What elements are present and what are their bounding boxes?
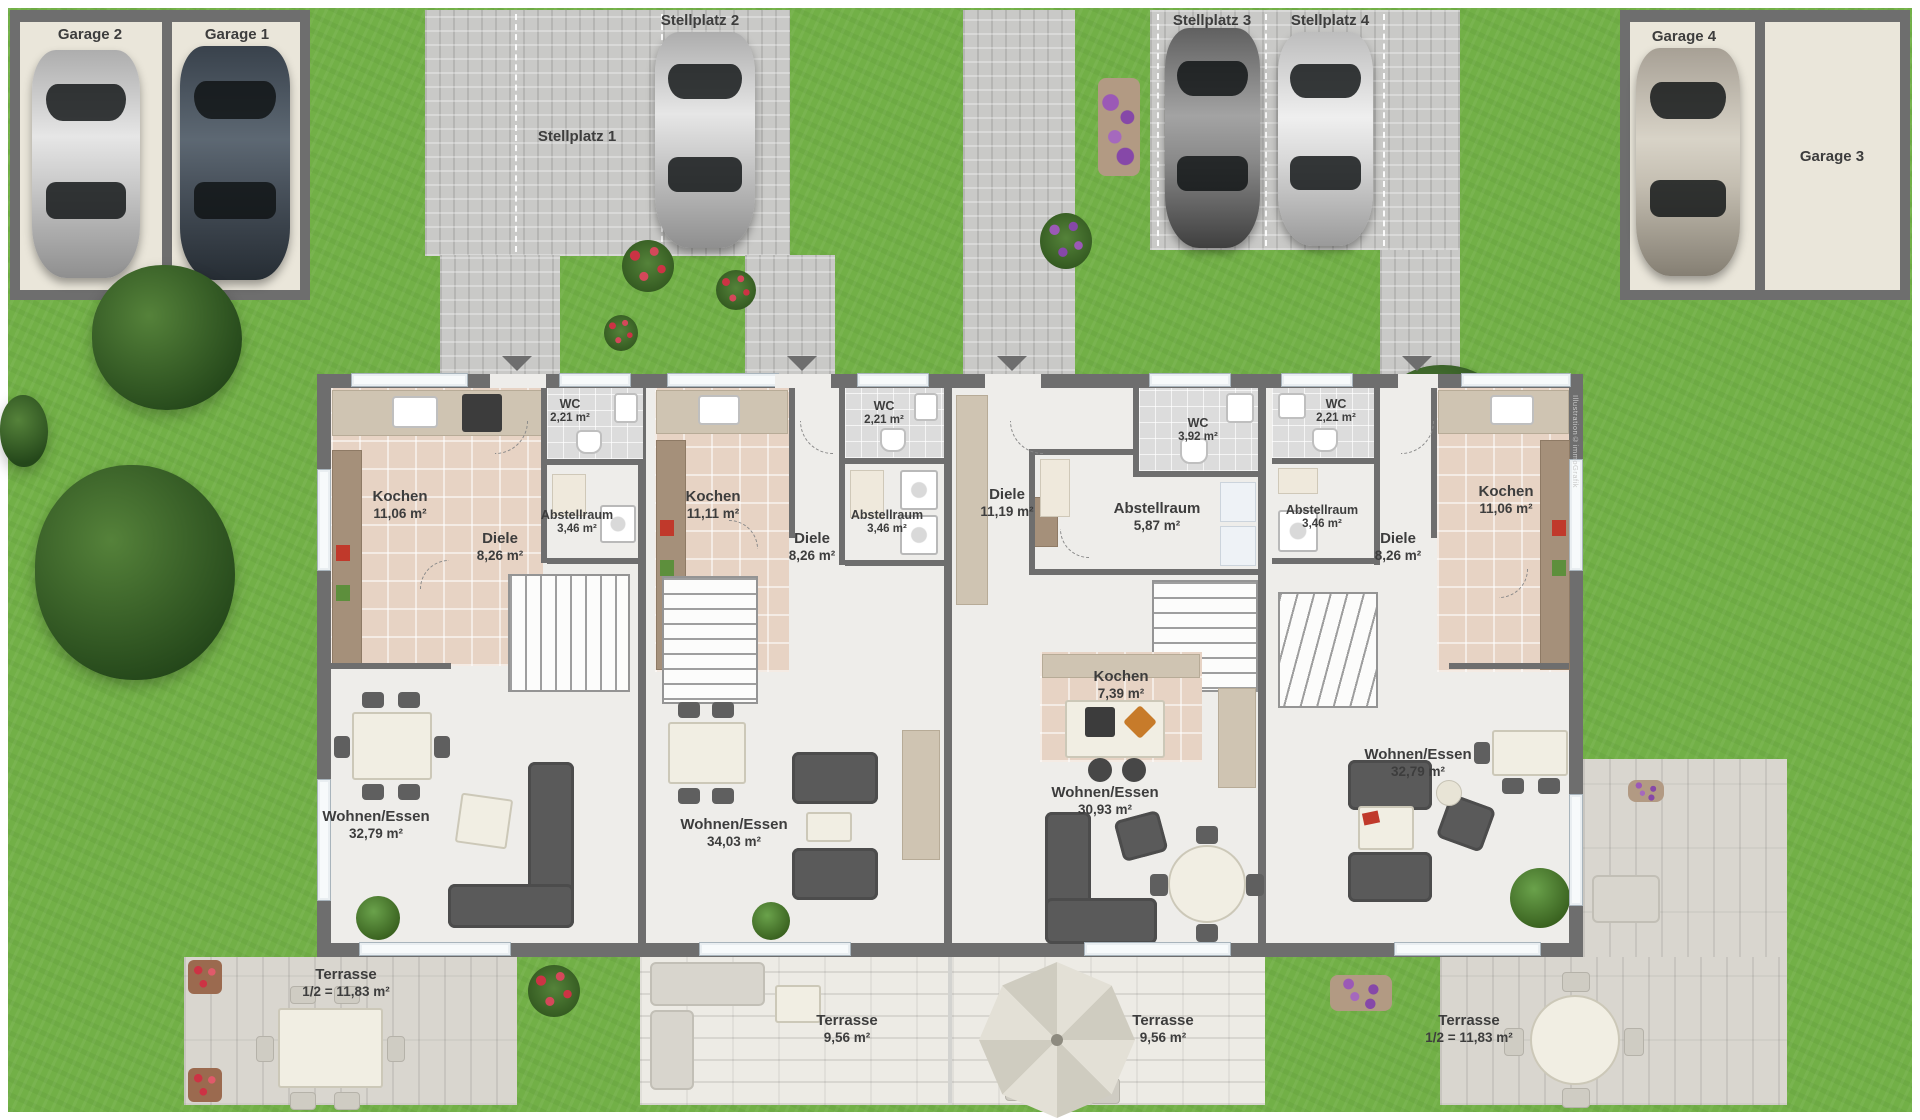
stellplatz-1-label: Stellplatz 1 [538,128,616,145]
flower-bush [604,315,638,351]
flower-bush [528,965,580,1017]
chair [1196,826,1218,844]
label-kochen-3: Kochen7,39 m² [1093,668,1148,702]
entrance-door-unit-2 [775,374,831,388]
plant-fern [1510,868,1570,928]
car-top-view [1636,48,1740,276]
parking-spot-marking [515,14,517,252]
counter-item [660,520,674,536]
label-diele-2: Diele8,26 m² [789,530,836,564]
dining-table [352,712,432,780]
tree [92,265,242,410]
window [318,470,330,570]
garage-4-label: Garage 4 [1652,28,1716,45]
terrace-chair [1562,1088,1590,1108]
parking-spot-marking [1265,14,1267,246]
counter-item [1552,520,1566,536]
window [668,374,778,386]
terrace-chair [290,1092,316,1110]
entrance-arrow [787,356,817,371]
plant [356,896,400,940]
inner-wall [331,663,451,669]
label-kochen-2: Kochen11,11 m² [685,488,740,522]
bar-stool [1122,758,1146,782]
party-wall [638,388,646,943]
terrace-door [360,943,510,955]
chair [398,692,420,708]
staircase-unit-1 [508,574,630,692]
stove [1085,707,1115,737]
sideboard [1218,688,1256,788]
toilet [576,430,602,454]
entrance-door-unit-3 [985,374,1041,388]
bar-stool [1088,758,1112,782]
sofa [1348,852,1432,902]
entrance-arrow [502,356,532,371]
label-wohnen-3: Wohnen/Essen30,93 m² [1051,784,1158,818]
flower-bed [1330,975,1392,1011]
inner-wall [1272,558,1374,564]
label-abstellraum-1: Abstellraum3,46 m² [541,508,613,537]
wc-sink [1226,393,1254,423]
label-kochen-1: Kochen11,06 m² [372,488,427,522]
storage-shelf [1220,526,1256,566]
tree [35,465,235,680]
chair [362,784,384,800]
entrance-door-unit-4 [1398,374,1438,388]
kitchen-counter [1540,440,1570,670]
sofa [448,884,574,928]
outdoor-table [775,985,821,1023]
dining-table-round [1168,845,1246,923]
staircase-unit-4 [1278,592,1378,708]
inner-wall [1029,569,1258,575]
chair [678,702,700,718]
garage-3-label: Garage 3 [1800,148,1864,165]
floor-plan-canvas: Garage 2 Garage 1 Stellplatz 1 Stellplat… [0,0,1920,1120]
inner-wall [845,560,944,566]
label-wc-2: WC2,21 m² [864,399,904,428]
counter-item [660,560,674,576]
wc-sink [614,393,638,423]
window [1150,374,1230,386]
storage-shelf [1278,468,1318,494]
inner-wall [1431,388,1437,538]
inner-wall [845,458,944,464]
dining-table [668,722,746,784]
washing-machine [900,470,938,510]
chair [1150,874,1168,896]
kitchen-sink [1490,395,1534,425]
flower-bush [716,270,756,310]
terrace-door [700,943,850,955]
outdoor-sofa [650,1010,694,1090]
label-abstellraum-3: Abstellraum5,87 m² [1114,500,1201,534]
label-terrasse-1: Terrasse1/2 = 11,83 m² [302,966,389,1000]
label-wc-3: WC3,92 m² [1178,416,1218,445]
inner-wall [547,558,643,564]
storage-shelf [1220,482,1256,522]
flower-bush [622,240,674,292]
chair [398,784,420,800]
coffee-table [806,812,852,842]
sofa [792,848,878,900]
flower-box [188,960,222,994]
coffee-table [455,793,513,850]
chair [1538,778,1560,794]
chair [712,702,734,718]
chair [334,736,350,758]
plant [752,902,790,940]
car-top-view [655,32,755,248]
label-wohnen-4: Wohnen/Essen32,79 m² [1364,746,1471,780]
label-terrasse-3: Terrasse9,56 m² [1132,1012,1193,1046]
chair [1196,924,1218,942]
kitchen-island [1065,700,1165,758]
flower-bed [1628,780,1664,802]
window [1462,374,1570,386]
inner-wall [1133,471,1258,477]
label-kochen-4: Kochen11,06 m² [1478,483,1533,517]
inner-wall [547,459,643,465]
flower-bush [1040,213,1092,269]
entrance-arrow [1402,356,1432,371]
stellplatz-2-label: Stellplatz 2 [661,12,739,29]
outdoor-sofa [650,962,765,1006]
flower-bed [1098,78,1140,176]
terrace-chair [256,1036,274,1062]
inner-wall [1272,458,1374,464]
inner-wall [1133,388,1139,477]
staircase-unit-2 [662,576,758,704]
label-wohnen-1: Wohnen/Essen32,79 m² [322,808,429,842]
flower-box [188,1068,222,1102]
kitchen-sink [392,396,438,428]
label-terrasse-2: Terrasse9,56 m² [816,1012,877,1046]
counter-item [336,545,350,561]
garage-1-label: Garage 1 [205,26,269,43]
chair [1502,778,1524,794]
bush [0,395,48,467]
entrance-arrow [997,356,1027,371]
chair [362,692,384,708]
wc-sink [914,393,938,421]
terrace-door [1395,943,1540,955]
entrance-door-unit-1 [490,374,546,388]
terrace-chair [387,1036,405,1062]
toilet [1312,428,1338,452]
car-top-view [1165,28,1260,248]
terrace-chair [1562,972,1590,992]
party-wall [944,388,952,943]
chair [678,788,700,804]
counter-item [1552,560,1566,576]
label-wc-1: WC2,21 m² [550,397,590,426]
terrace-door [1085,943,1230,955]
storage-shelf [1040,459,1070,517]
label-terrasse-4: Terrasse1/2 = 11,83 m² [1425,1012,1512,1046]
wc-sink [1278,393,1306,419]
terrace-table-round [1530,995,1620,1085]
parking-spot-marking [1383,14,1385,246]
parasol-center [1051,1034,1063,1046]
garage-2-label: Garage 2 [58,26,122,43]
walkway-unit-1 [440,255,560,385]
label-wohnen-2: Wohnen/Essen34,03 m² [680,816,787,850]
party-wall [1258,388,1266,943]
walkway-unit-3 [963,10,1075,385]
stellplatz-3-label: Stellplatz 3 [1173,12,1251,29]
label-wc-4: WC2,21 m² [1316,397,1356,426]
inner-wall [1449,663,1569,669]
inner-wall [789,388,795,538]
parking-spot-marking [1157,14,1159,246]
sofa [1045,898,1157,944]
label-abstellraum-2: Abstellraum3,46 m² [851,508,923,537]
chair [1474,742,1490,764]
kitchen-sink [698,395,740,425]
window [858,374,928,386]
inner-wall [1029,449,1139,455]
label-diele-3: Diele11,19 m² [980,486,1033,520]
car-top-view [180,46,290,280]
chair [1246,874,1264,896]
chair [434,736,450,758]
sideboard [902,730,940,860]
window [1282,374,1352,386]
stellplatz-4-label: Stellplatz 4 [1291,12,1369,29]
terrace-chair [334,1092,360,1110]
dining-table [1492,730,1568,776]
car-top-view [1278,32,1373,246]
car-top-view [32,50,140,278]
terrace-table [278,1008,383,1088]
counter-item [336,585,350,601]
chair [712,788,734,804]
sofa [792,752,878,804]
sun-lounger [1592,875,1660,923]
terrace-chair [1624,1028,1644,1056]
label-diele-4: Diele8,26 m² [1375,530,1422,564]
window [560,374,630,386]
toilet [880,428,906,452]
window [352,374,467,386]
side-table-round [1436,780,1462,806]
watermark: Illustration©immoGrafik [1571,395,1580,515]
label-diele-1: Diele8,26 m² [477,530,524,564]
window [1570,795,1582,905]
label-abstellraum-4: Abstellraum3,46 m² [1286,503,1358,532]
